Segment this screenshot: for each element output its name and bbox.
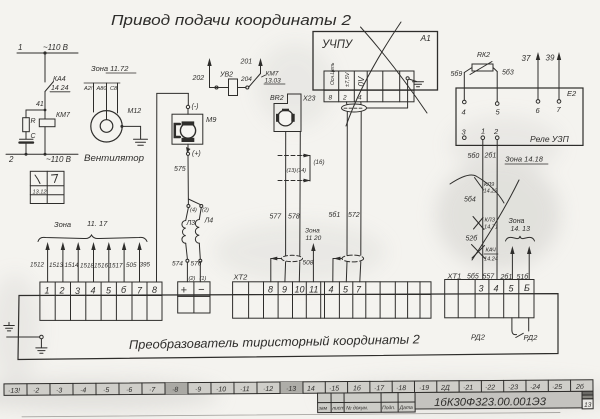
- svg-text:574: 574: [172, 261, 183, 268]
- svg-text:577: 577: [270, 214, 283, 221]
- svg-text:395: 395: [140, 262, 151, 269]
- svg-text:·22: ·22: [485, 384, 495, 391]
- svg-text:·11: ·11: [240, 386, 250, 393]
- svg-text:41: 41: [36, 101, 44, 108]
- svg-text:9: 9: [282, 285, 287, 295]
- svg-text:С8: С8: [110, 86, 118, 92]
- svg-text:Л3: Л3: [186, 220, 196, 227]
- svg-text:1: 1: [18, 43, 22, 52]
- svg-text:14.24: 14.24: [484, 257, 498, 263]
- svg-text:УВ2: УВ2: [219, 72, 233, 79]
- svg-text:3: 3: [479, 284, 484, 294]
- svg-text:УЧПУ: УЧПУ: [321, 39, 354, 51]
- svg-text:1: 1: [481, 127, 485, 136]
- svg-text:·23: ·23: [508, 384, 518, 391]
- svg-text:8: 8: [268, 285, 273, 295]
- svg-text:11: 11: [309, 285, 318, 295]
- svg-text:11. 17: 11. 17: [87, 219, 108, 228]
- svg-text:8: 8: [329, 95, 333, 102]
- svg-text:5б1: 5б1: [329, 211, 341, 219]
- svg-text:575: 575: [174, 166, 186, 173]
- svg-text:лист: лист: [331, 405, 344, 411]
- svg-text:1512: 1512: [30, 262, 45, 269]
- svg-text:52б: 52б: [466, 235, 479, 243]
- svg-text:−: −: [198, 284, 205, 296]
- svg-text:4: 4: [329, 285, 334, 295]
- svg-text:RК2: RК2: [477, 52, 490, 59]
- svg-text:5б4: 5б4: [464, 196, 476, 204]
- svg-text:39: 39: [546, 54, 555, 63]
- svg-text:~110 В: ~110 В: [43, 43, 69, 52]
- svg-text:0V: 0V: [357, 76, 366, 86]
- svg-text:М9: М9: [206, 115, 217, 124]
- svg-text:±7,5V: ±7,5V: [345, 71, 351, 87]
- svg-text:·13!: ·13!: [8, 388, 20, 395]
- svg-text:572: 572: [348, 212, 360, 219]
- svg-text:Б: Б: [524, 283, 530, 293]
- svg-text:1бК30Ф323.00.001Э3: 1бК30Ф323.00.001Э3: [434, 396, 547, 409]
- svg-text:А2!: А2!: [83, 86, 93, 92]
- svg-text:2: 2: [8, 155, 14, 164]
- svg-text:5б0: 5б0: [468, 152, 480, 160]
- svg-text:Зона: Зона: [54, 220, 71, 229]
- svg-text:Дата: Дата: [399, 405, 413, 411]
- svg-text:Зона 14.18: Зона 14.18: [505, 155, 544, 164]
- svg-text:5б9: 5б9: [451, 70, 463, 78]
- svg-text:11 20: 11 20: [306, 235, 322, 242]
- svg-text:·6: ·6: [126, 387, 132, 394]
- svg-text:14 24: 14 24: [51, 85, 69, 92]
- svg-text:РД2: РД2: [524, 333, 539, 342]
- svg-text:1514: 1514: [65, 262, 80, 269]
- svg-text:·15: ·15: [329, 386, 339, 393]
- svg-text:14: 14: [307, 386, 315, 393]
- svg-text:1517: 1517: [109, 263, 124, 270]
- svg-text:·25: ·25: [552, 384, 562, 391]
- svg-text:·13: ·13: [286, 386, 296, 393]
- svg-text:(2): (2): [189, 276, 196, 282]
- svg-text:4: 4: [462, 108, 466, 117]
- svg-text:202: 202: [192, 75, 205, 82]
- svg-text:~110 В: ~110 В: [46, 155, 72, 164]
- svg-text:Е2: Е2: [567, 89, 577, 98]
- svg-text:1516: 1516: [94, 263, 109, 270]
- svg-text:Л4: Л4: [204, 218, 214, 225]
- svg-text:зам: зам: [318, 406, 328, 412]
- svg-text:2: 2: [493, 127, 499, 136]
- svg-text:КМ7: КМ7: [266, 71, 279, 78]
- svg-text:А1: А1: [420, 33, 432, 43]
- svg-text:1: 1: [45, 286, 50, 296]
- svg-text:578: 578: [288, 214, 300, 221]
- svg-text:·24: ·24: [530, 384, 540, 391]
- svg-text:201: 201: [240, 59, 253, 66]
- svg-text:4: 4: [494, 284, 499, 294]
- svg-text:1518: 1518: [80, 263, 95, 270]
- svg-text:·17: ·17: [374, 385, 385, 392]
- svg-text:Х23: Х23: [302, 96, 316, 103]
- svg-text:·8: ·8: [172, 387, 178, 394]
- svg-text:13.03: 13.03: [265, 78, 282, 85]
- svg-text:5б3: 5б3: [502, 69, 514, 77]
- svg-text:1513: 1513: [49, 262, 64, 269]
- svg-text:Привод подачи координаты 2: Привод подачи координаты 2: [111, 12, 352, 29]
- svg-text:(2): (2): [202, 208, 209, 214]
- svg-text:А80: А80: [96, 86, 108, 92]
- svg-text:3: 3: [75, 286, 80, 296]
- svg-text:КЛЗ: КЛЗ: [485, 218, 496, 224]
- svg-text:·10: ·10: [216, 386, 226, 393]
- svg-text:(4): (4): [190, 208, 197, 214]
- svg-text:(13): (13): [287, 168, 297, 174]
- svg-text:КА4: КА4: [53, 76, 66, 83]
- svg-text:№ докум.: № докум.: [346, 405, 368, 411]
- svg-text:508: 508: [303, 260, 314, 267]
- svg-text:Зона 11.72: Зона 11.72: [91, 64, 129, 73]
- svg-text:·4: ·4: [80, 387, 86, 394]
- svg-text:КМ7: КМ7: [56, 112, 71, 119]
- svg-text:Подп.: Подп.: [382, 405, 395, 411]
- svg-text:505: 505: [126, 262, 137, 269]
- svg-text:·3: ·3: [56, 387, 62, 394]
- svg-text:М12: М12: [128, 108, 142, 115]
- svg-text:·21: ·21: [463, 385, 473, 392]
- svg-text:·2: ·2: [33, 388, 39, 395]
- svg-text:·19: ·19: [419, 385, 429, 392]
- svg-text:14. 13: 14. 13: [511, 226, 531, 233]
- svg-text:2Д: 2Д: [440, 385, 450, 392]
- svg-text:2б1: 2б1: [484, 152, 497, 160]
- svg-text:2б: 2б: [575, 383, 585, 391]
- svg-text:Осн.Цепь: Осн.Цепь: [330, 62, 336, 85]
- svg-text:·18: ·18: [396, 385, 406, 392]
- svg-text:КАЧ: КАЧ: [486, 248, 497, 254]
- svg-text:(14): (14): [297, 168, 307, 174]
- svg-text:(+): (+): [192, 151, 201, 158]
- svg-text:Реле УЗП: Реле УЗП: [530, 134, 570, 144]
- svg-text:1б: 1б: [353, 384, 362, 392]
- svg-text:R: R: [31, 118, 36, 125]
- svg-text:(16): (16): [314, 159, 325, 166]
- svg-text:Зона: Зона: [305, 228, 320, 235]
- svg-text:BR2: BR2: [270, 95, 284, 102]
- svg-text:204: 204: [240, 76, 252, 83]
- svg-text:Зона: Зона: [509, 218, 525, 225]
- svg-text:37: 37: [522, 54, 531, 63]
- svg-text:13.12: 13.12: [33, 190, 48, 196]
- svg-text:8: 8: [152, 285, 157, 295]
- svg-text:·5: ·5: [103, 387, 109, 394]
- svg-text:·9: ·9: [195, 386, 201, 393]
- svg-text:4: 4: [91, 286, 96, 296]
- svg-text:10: 10: [295, 285, 305, 295]
- svg-text:ХТ2: ХТ2: [233, 273, 249, 282]
- svg-text:2: 2: [342, 95, 347, 102]
- svg-text:2: 2: [59, 286, 65, 296]
- svg-text:(-): (-): [192, 104, 199, 111]
- svg-text:(1): (1): [200, 276, 207, 282]
- svg-text:РД2: РД2: [471, 333, 486, 342]
- svg-text:Вентилятор: Вентилятор: [84, 153, 144, 164]
- svg-text:·12: ·12: [263, 386, 273, 393]
- svg-text:13: 13: [584, 402, 592, 409]
